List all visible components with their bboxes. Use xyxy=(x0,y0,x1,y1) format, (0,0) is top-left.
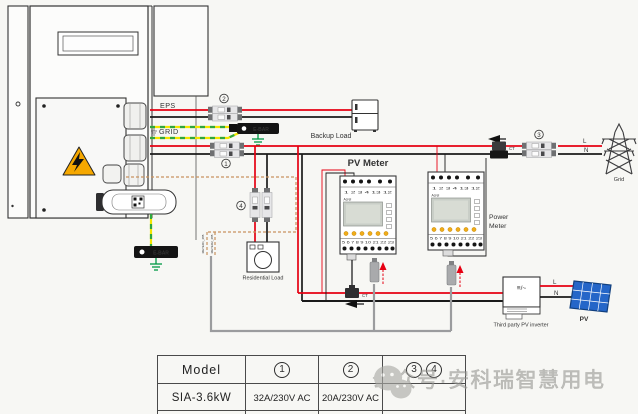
table-header-model: Model xyxy=(182,363,221,377)
pv-meter-top-terminals: 1 2 3 4 13 12 xyxy=(344,191,392,195)
dc-ac-symbol: ≡/~ xyxy=(517,285,527,292)
breaker-1-number: 1 xyxy=(224,161,228,168)
ebar-2-label: E-BAR xyxy=(153,251,169,257)
ground-icon xyxy=(252,134,264,145)
model-value: SIA-3.6kW xyxy=(172,392,231,404)
table-header-row: Model 1 2 34 xyxy=(158,356,466,384)
table-data-row: SIA-3.6kW 32A/230V AC 20A/230V AC xyxy=(158,384,466,411)
eps-label: EPS xyxy=(160,101,176,110)
pv-meter-title: PV Meter xyxy=(348,158,389,169)
comm-label-1: METER1_485 xyxy=(201,234,205,253)
pv-label: PV xyxy=(580,316,589,323)
table-header-circle-1: 1 xyxy=(274,362,290,378)
inverter-display xyxy=(58,32,138,55)
residential-load: Residential Load xyxy=(243,242,284,282)
power-meter-label-1: Power xyxy=(489,214,509,221)
earth-bar-2: E-BAR xyxy=(134,246,178,270)
breaker-3-number: 3 xyxy=(537,132,541,139)
breaker-1: 1 xyxy=(210,142,244,168)
residential-load-label: Residential Load xyxy=(243,276,284,282)
grid-ct-label: CT xyxy=(509,146,515,151)
grid-port-label: GRID xyxy=(159,127,179,136)
table-header-circle-4: 4 xyxy=(426,362,442,378)
third-party-pv-inverter: ≡/~ Third party PV inverter xyxy=(493,277,548,329)
power-meter-sense-wires xyxy=(437,146,445,172)
pv-meter-bottom-terminals: 5 6 7 8 9 10 21 22 23 xyxy=(342,241,394,245)
rating-1-value: 32A/230V AC xyxy=(253,393,310,404)
pv-n-label: N xyxy=(554,290,558,297)
qr-code xyxy=(132,196,144,208)
backup-load: Backup Load xyxy=(311,100,378,140)
spec-table: Model 1 2 34 SIA-3.6kW 32A/230V AC 20A/2… xyxy=(157,355,466,414)
grid-tower-icon xyxy=(602,124,636,174)
rs485-plug-pv-meter xyxy=(370,258,387,284)
hybrid-inverter xyxy=(8,6,208,240)
wiring-diagram: EPS 2 E-BAR xyxy=(0,0,638,414)
rs485-plug-power-meter xyxy=(447,261,464,287)
backup-load-label: Backup Load xyxy=(311,133,352,140)
breaker-2-number: 2 xyxy=(222,96,226,103)
eps-circuit: EPS xyxy=(150,101,352,117)
grid-l-label: L xyxy=(583,138,587,145)
power-meter: 1 2 3 4 13 12 Acrel 5 6 7 8 9 10 21 22 2… xyxy=(428,172,484,250)
rating-2-value: 20A/230V AC xyxy=(322,393,379,404)
power-meter-label-2: Meter xyxy=(489,223,507,230)
grid-cable-gland xyxy=(124,135,146,161)
mount-bracket-panel xyxy=(154,6,208,96)
pv-ct-label: CT xyxy=(362,293,368,298)
power-meter-ct-plug xyxy=(443,250,453,256)
wiring-diagram-page: EPS 2 E-BAR xyxy=(0,0,638,414)
table-header-circle-3: 3 xyxy=(406,362,422,378)
meter-brand: Acrel xyxy=(344,198,352,202)
comm-label-2: METER2_485 xyxy=(210,234,214,253)
pv-meter-ct-plug xyxy=(347,254,356,260)
meter-brand: Acrel xyxy=(432,194,440,198)
ground-icon xyxy=(150,258,162,270)
eps-cable-gland xyxy=(124,103,146,129)
pv-panel-icon xyxy=(570,281,611,312)
wifi-dongle xyxy=(96,190,176,214)
third-party-inverter-label: Third party PV inverter xyxy=(493,323,548,329)
grid-n-label: N xyxy=(584,147,588,154)
breaker-3: 3 xyxy=(522,130,556,157)
breaker-4: 4 xyxy=(237,188,272,222)
breaker-4-number: 4 xyxy=(239,203,243,210)
table-clipped-row xyxy=(158,411,466,414)
power-meter-top-terminals: 1 2 3 4 13 12 xyxy=(432,187,480,191)
grid-label: Grid xyxy=(614,177,624,183)
pv-ct: CT xyxy=(345,285,368,308)
pv-meter: 1 2 3 4 13 12 Acrel 5 6 7 8 9 10 21 22 2… xyxy=(340,176,396,254)
pv-l-label: L xyxy=(553,279,557,286)
breaker-2: 2 xyxy=(208,94,242,121)
table-header-circle-2: 2 xyxy=(343,362,359,378)
power-meter-bottom-terminals: 5 6 7 8 9 10 21 22 23 xyxy=(430,237,482,241)
ebar-1-label: E-BAR xyxy=(253,127,269,133)
